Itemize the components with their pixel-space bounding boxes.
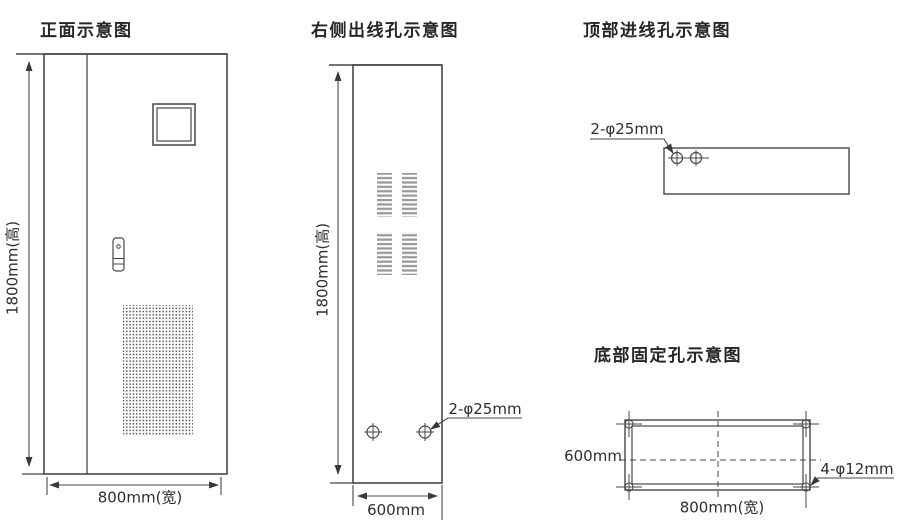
louver-vent bbox=[402, 232, 417, 275]
bottom-hole-leader-line bbox=[811, 478, 894, 485]
side-view-drawing bbox=[329, 65, 522, 520]
front-view-drawing bbox=[16, 54, 227, 495]
side-cabinet-outline bbox=[353, 65, 442, 483]
side-hole-leader-line bbox=[431, 418, 522, 429]
technical-drawing-page: 正面示意图 右侧出线孔示意图 顶部进线孔示意图 底部固定孔示意图 1800mm(… bbox=[0, 0, 900, 523]
louver-vents bbox=[377, 173, 417, 275]
front-height-dimension-label: 1800mm(高) bbox=[2, 221, 23, 315]
ventilation-perforation-grid bbox=[123, 305, 193, 435]
bottom-hole-callout-label: 4-φ12mm bbox=[820, 460, 893, 478]
front-width-dimension-label: 800mm(宽) bbox=[98, 487, 183, 508]
louver-vent bbox=[402, 173, 417, 217]
louver-vent bbox=[377, 173, 392, 217]
top-hole-callout-label: 2-φ25mm bbox=[590, 120, 663, 138]
engineering-drawing-canvas bbox=[0, 0, 900, 523]
viewing-window-outer bbox=[153, 104, 195, 145]
louver-vent bbox=[377, 232, 392, 275]
side-depth-dimension-label: 600mm bbox=[367, 501, 425, 519]
top-inlet-holes bbox=[668, 150, 709, 166]
side-cable-holes bbox=[364, 423, 434, 441]
bottom-depth-dimension-label: 600mm bbox=[564, 447, 622, 465]
side-view-title: 右侧出线孔示意图 bbox=[311, 16, 459, 41]
door-handle bbox=[113, 238, 124, 271]
bottom-view-title: 底部固定孔示意图 bbox=[594, 341, 742, 366]
front-view-title: 正面示意图 bbox=[40, 16, 133, 41]
top-hole-leader-line bbox=[590, 139, 673, 153]
top-view-title: 顶部进线孔示意图 bbox=[583, 16, 731, 41]
side-hole-callout-label: 2-φ25mm bbox=[448, 400, 521, 418]
bottom-width-dimension-label: 800mm(宽) bbox=[680, 497, 765, 518]
side-height-dimension-label: 1800mm(高) bbox=[312, 223, 333, 317]
top-view-drawing bbox=[590, 139, 849, 194]
viewing-window-inner bbox=[157, 108, 191, 141]
